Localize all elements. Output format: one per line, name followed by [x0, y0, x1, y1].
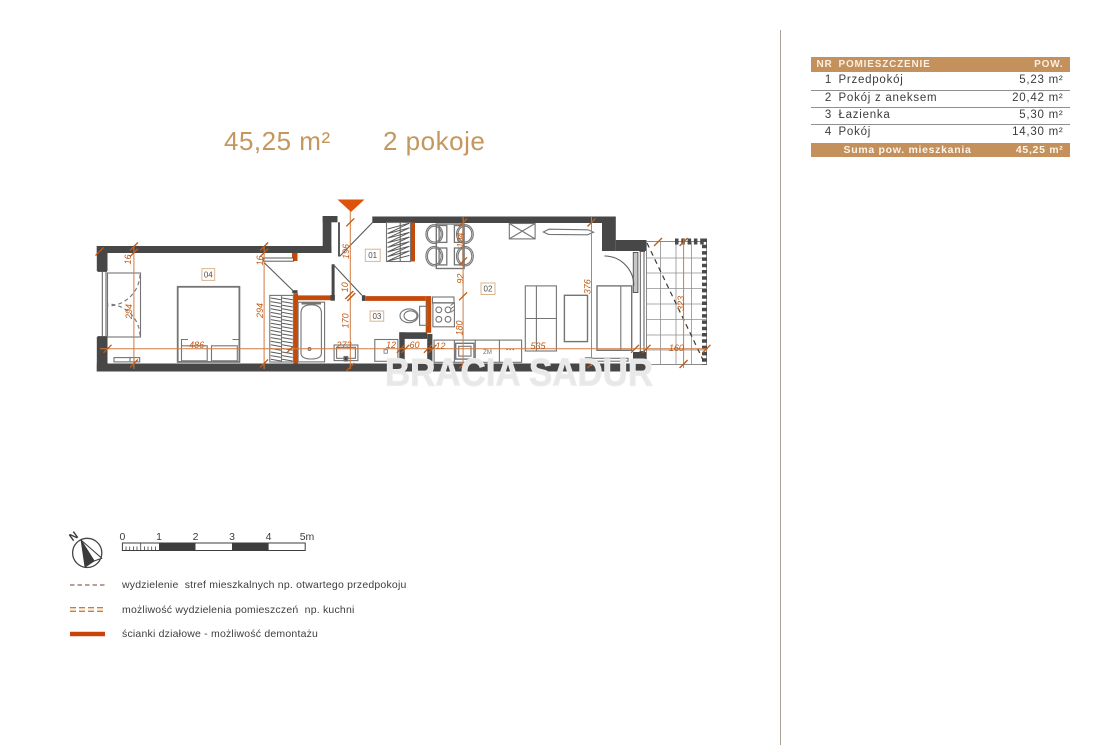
svg-text:10: 10	[340, 282, 350, 292]
svg-text:04: 04	[204, 270, 213, 279]
svg-text:16: 16	[255, 256, 265, 266]
svg-text:294: 294	[124, 304, 134, 320]
svg-text:535: 535	[530, 341, 546, 351]
svg-text:170: 170	[340, 313, 350, 328]
svg-text:01: 01	[368, 251, 377, 260]
svg-text:486: 486	[189, 340, 204, 350]
svg-text:12: 12	[386, 340, 396, 350]
svg-text:104: 104	[456, 233, 466, 248]
svg-text:294: 294	[255, 303, 265, 319]
svg-text:02: 02	[484, 285, 493, 294]
svg-text:2: 2	[193, 531, 199, 543]
svg-text:60: 60	[409, 340, 419, 350]
svg-text:160: 160	[669, 343, 684, 353]
svg-text:12: 12	[435, 341, 445, 351]
svg-text:1: 1	[156, 531, 162, 543]
svg-text:3: 3	[229, 531, 235, 543]
svg-text:376: 376	[583, 279, 593, 294]
svg-text:323: 323	[676, 296, 686, 311]
svg-text:0: 0	[119, 531, 125, 543]
svg-text:03: 03	[372, 312, 381, 321]
svg-text:5m: 5m	[300, 531, 315, 543]
svg-text:273: 273	[335, 340, 351, 350]
svg-text:4: 4	[266, 531, 272, 543]
svg-text:180: 180	[455, 321, 465, 336]
svg-text:92: 92	[456, 274, 466, 284]
svg-text:196: 196	[341, 244, 351, 259]
svg-text:BRACIA SADUR: BRACIA SADUR	[385, 352, 653, 395]
svg-text:16: 16	[123, 255, 133, 265]
